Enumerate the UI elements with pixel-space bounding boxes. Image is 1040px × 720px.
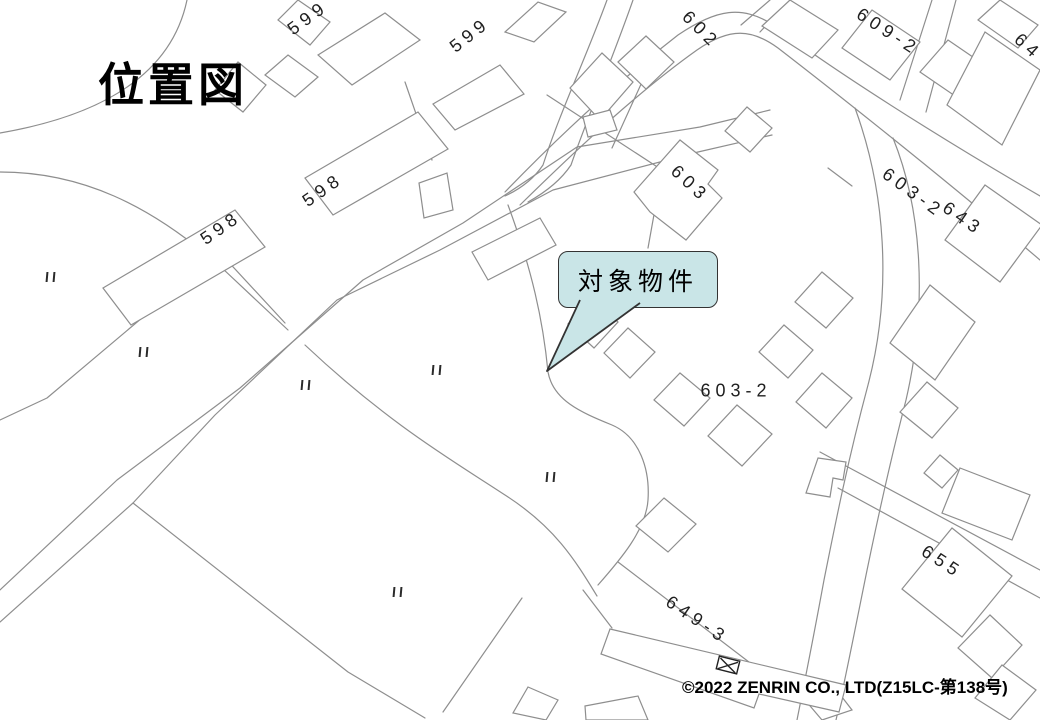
building-outline [708,405,772,466]
building-outline [513,687,558,720]
ditto-mark-icon [544,472,558,482]
building-outline [265,55,318,97]
building-outline [759,325,813,378]
map-page: 位置図 599599602609-264598598603603-2643603… [0,0,1040,720]
ditto-mark-icon [137,347,151,357]
building-outline [583,110,617,137]
map-line [305,345,597,596]
map-line [443,598,522,712]
building-outline [103,210,265,325]
ditto-mark-icon [44,272,58,282]
subject-property-callout: 対象物件 [558,251,718,308]
building-outline [318,13,420,85]
building-outline [585,696,648,720]
building-outline [795,272,853,328]
ditto-mark-icon [430,365,444,375]
building-outline [806,458,846,497]
building-outline [796,373,852,428]
building-outline [945,185,1040,282]
building-outline [433,65,524,130]
map-line [741,0,770,25]
ditto-mark-icon [391,587,405,597]
ditto-mark-icon [299,380,313,390]
callout-label: 対象物件 [578,262,698,298]
building-outline [636,498,696,552]
building-outline [472,218,556,280]
building-outline [762,0,838,58]
building-outline [924,455,958,488]
building-outline [890,285,975,380]
map-line [828,168,852,186]
building-outline [604,328,655,378]
building-outline [942,468,1030,540]
parcel-label: 603-2 [700,381,771,402]
copyright-notice: ©2022 ZENRIN CO., LTD(Z15LC-第138号) [682,673,1008,698]
map-line [836,138,919,720]
building-outline [419,173,453,218]
map-line [133,503,425,718]
page-title: 位置図 [98,58,248,113]
building-outline [505,2,566,42]
building-outline [725,107,772,152]
